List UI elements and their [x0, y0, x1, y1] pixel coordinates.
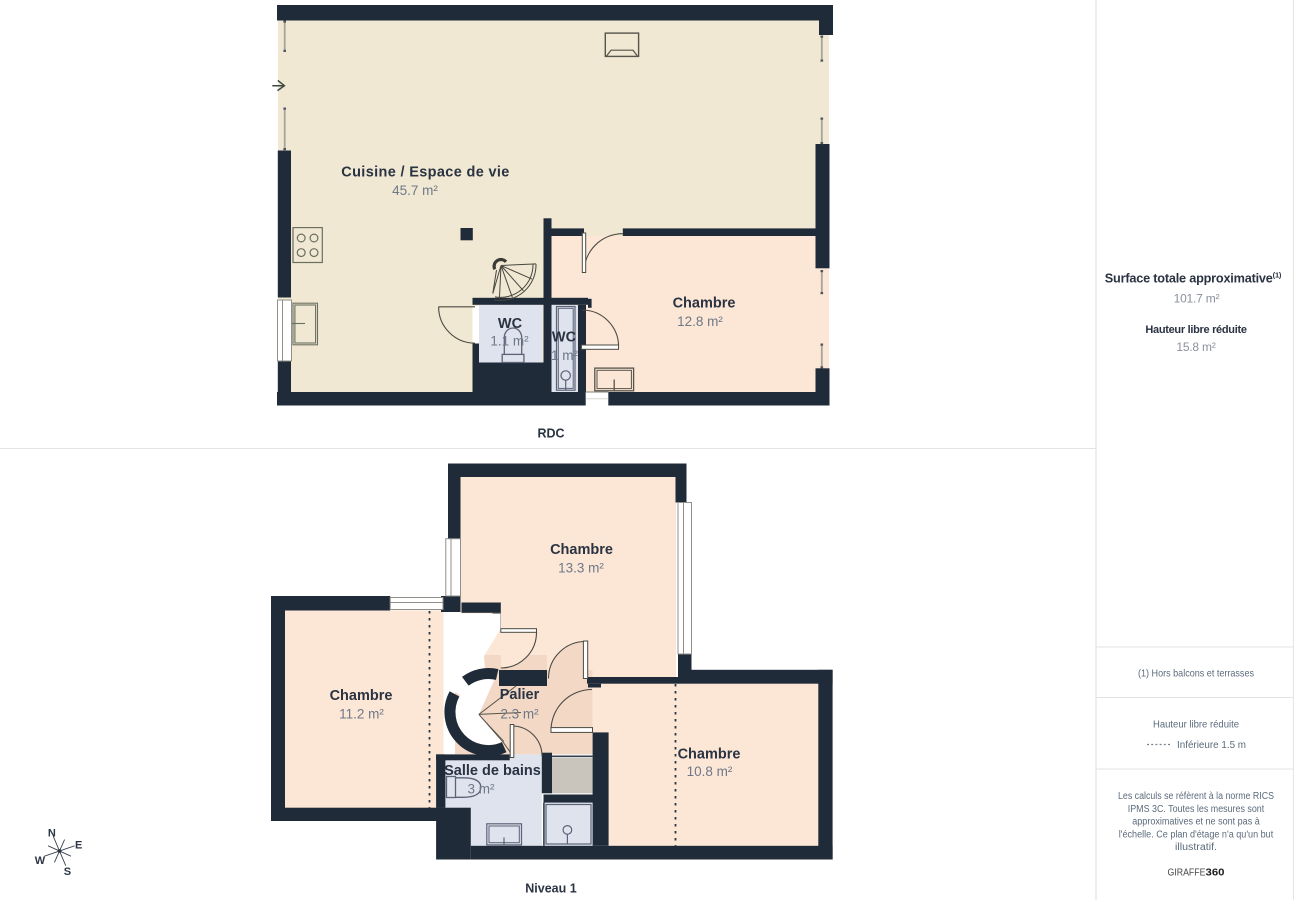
svg-text:Chambre: Chambre [330, 688, 393, 704]
svg-text:Chambre: Chambre [550, 542, 613, 558]
svg-text:Salle de bains: Salle de bains [444, 763, 541, 779]
svg-text:IPMS 3C. Toutes les mesures so: IPMS 3C. Toutes les mesures sont [1128, 804, 1265, 815]
svg-text:Hauteur libre réduite: Hauteur libre réduite [1153, 720, 1239, 731]
svg-text:360: 360 [1206, 867, 1225, 879]
svg-text:Inférieure 1.5 m: Inférieure 1.5 m [1177, 740, 1246, 751]
svg-text:13.3 m²: 13.3 m² [558, 561, 604, 576]
svg-text:101.7 m²: 101.7 m² [1174, 292, 1220, 306]
svg-text:approximatives et ne sont pas: approximatives et ne sont pas à [1132, 817, 1260, 828]
svg-text:11.2 m²: 11.2 m² [339, 707, 384, 722]
svg-text:W: W [35, 855, 46, 867]
svg-text:S: S [64, 866, 71, 878]
svg-text:2.3 m²: 2.3 m² [500, 707, 539, 722]
svg-text:E: E [75, 839, 82, 851]
svg-text:(1) Hors balcons et terrasses: (1) Hors balcons et terrasses [1138, 669, 1254, 680]
svg-text:15.8 m²: 15.8 m² [1176, 340, 1215, 354]
svg-text:Hauteur libre réduite: Hauteur libre réduite [1145, 324, 1246, 336]
svg-text:GIRAFFE: GIRAFFE [1168, 867, 1206, 879]
svg-text:Palier: Palier [500, 687, 540, 703]
svg-text:N: N [48, 828, 56, 840]
svg-text:10.8 m²: 10.8 m² [687, 764, 733, 779]
svg-text:Surface totale approximative(1: Surface totale approximative(1) [1105, 271, 1282, 286]
svg-text:Chambre: Chambre [678, 747, 741, 763]
svg-text:Cuisine / Espace de vie: Cuisine / Espace de vie [341, 165, 509, 181]
svg-text:45.7 m²: 45.7 m² [392, 183, 438, 198]
svg-text:Les calculs se réfèrent à la n: Les calculs se réfèrent à la norme RICS [1118, 791, 1274, 802]
svg-text:RDC: RDC [537, 427, 564, 441]
svg-text:1 m²: 1 m² [551, 348, 579, 363]
svg-text:WC: WC [552, 330, 577, 346]
svg-text:illustratif.: illustratif. [1175, 842, 1217, 853]
svg-text:l'échelle. Ce plan d'étage n'a: l'échelle. Ce plan d'étage n'a qu'un but [1119, 829, 1274, 840]
svg-text:WC: WC [498, 316, 523, 332]
svg-text:12.8 m²: 12.8 m² [677, 314, 723, 329]
svg-text:Niveau 1: Niveau 1 [525, 882, 576, 896]
svg-text:1.1 m²: 1.1 m² [490, 334, 529, 349]
svg-text:Chambre: Chambre [673, 296, 736, 312]
svg-text:3 m²: 3 m² [468, 782, 496, 797]
